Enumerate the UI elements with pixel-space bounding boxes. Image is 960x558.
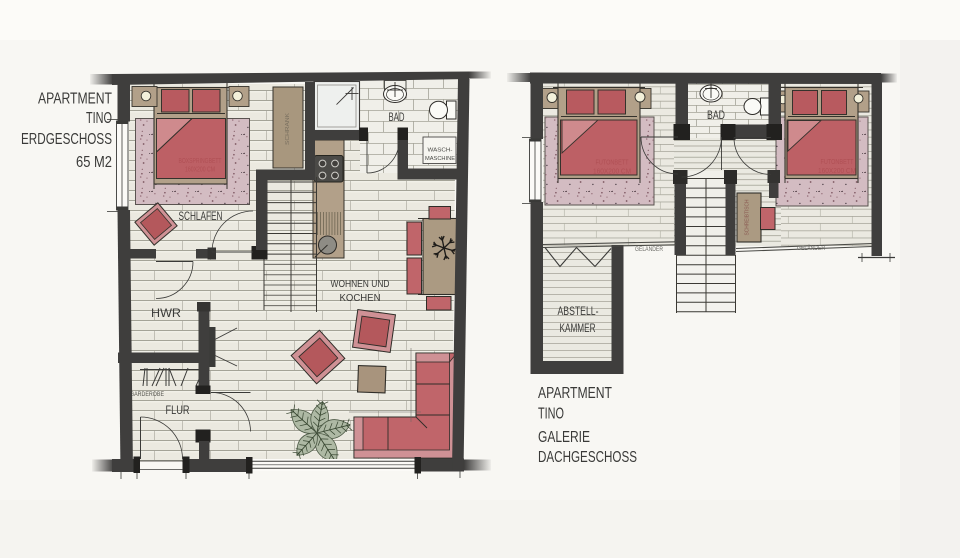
- svg-text:SCHRANK: SCHRANK: [285, 113, 291, 145]
- svg-text:160X200 CM: 160X200 CM: [818, 166, 856, 175]
- svg-text:SCHLAFEN: SCHLAFEN: [179, 209, 223, 223]
- svg-text:ERDGESCHOSS: ERDGESCHOSS: [21, 131, 112, 148]
- svg-text:TINO: TINO: [86, 110, 112, 127]
- svg-text:160X200 CM: 160X200 CM: [185, 165, 215, 174]
- svg-text:APARTMENT: APARTMENT: [38, 91, 112, 108]
- svg-text:APARTMENT: APARTMENT: [538, 385, 612, 402]
- svg-text:WASCH-: WASCH-: [428, 148, 453, 154]
- svg-text:WOHNEN UND: WOHNEN UND: [331, 278, 390, 290]
- svg-text:GELÄNDER: GELÄNDER: [797, 245, 826, 252]
- svg-text:KAMMER: KAMMER: [560, 321, 596, 335]
- svg-text:GALERIE: GALERIE: [538, 429, 590, 446]
- svg-text:GARDEROBE: GARDEROBE: [130, 392, 164, 398]
- svg-text:HWR: HWR: [151, 306, 181, 320]
- svg-text:DACHGESCHOSS: DACHGESCHOSS: [538, 449, 637, 466]
- svg-text:FLUR: FLUR: [166, 403, 190, 417]
- svg-text:GELÄNDER: GELÄNDER: [635, 246, 664, 253]
- svg-text:FUTONBETT: FUTONBETT: [596, 158, 629, 167]
- svg-text:ABSTELL-: ABSTELL-: [558, 304, 599, 318]
- svg-text:TINO: TINO: [538, 406, 564, 423]
- svg-text:BAD: BAD: [707, 108, 725, 122]
- svg-text:65 M2: 65 M2: [76, 154, 112, 171]
- svg-text:BAD: BAD: [389, 110, 405, 124]
- svg-text:160X200 CM: 160X200 CM: [593, 167, 631, 176]
- svg-text:MASCHINE: MASCHINE: [425, 156, 455, 162]
- svg-text:KOCHEN: KOCHEN: [340, 292, 381, 304]
- svg-text:FUTONBETT: FUTONBETT: [821, 157, 854, 166]
- svg-text:SCHREIBTISCH: SCHREIBTISCH: [745, 199, 751, 235]
